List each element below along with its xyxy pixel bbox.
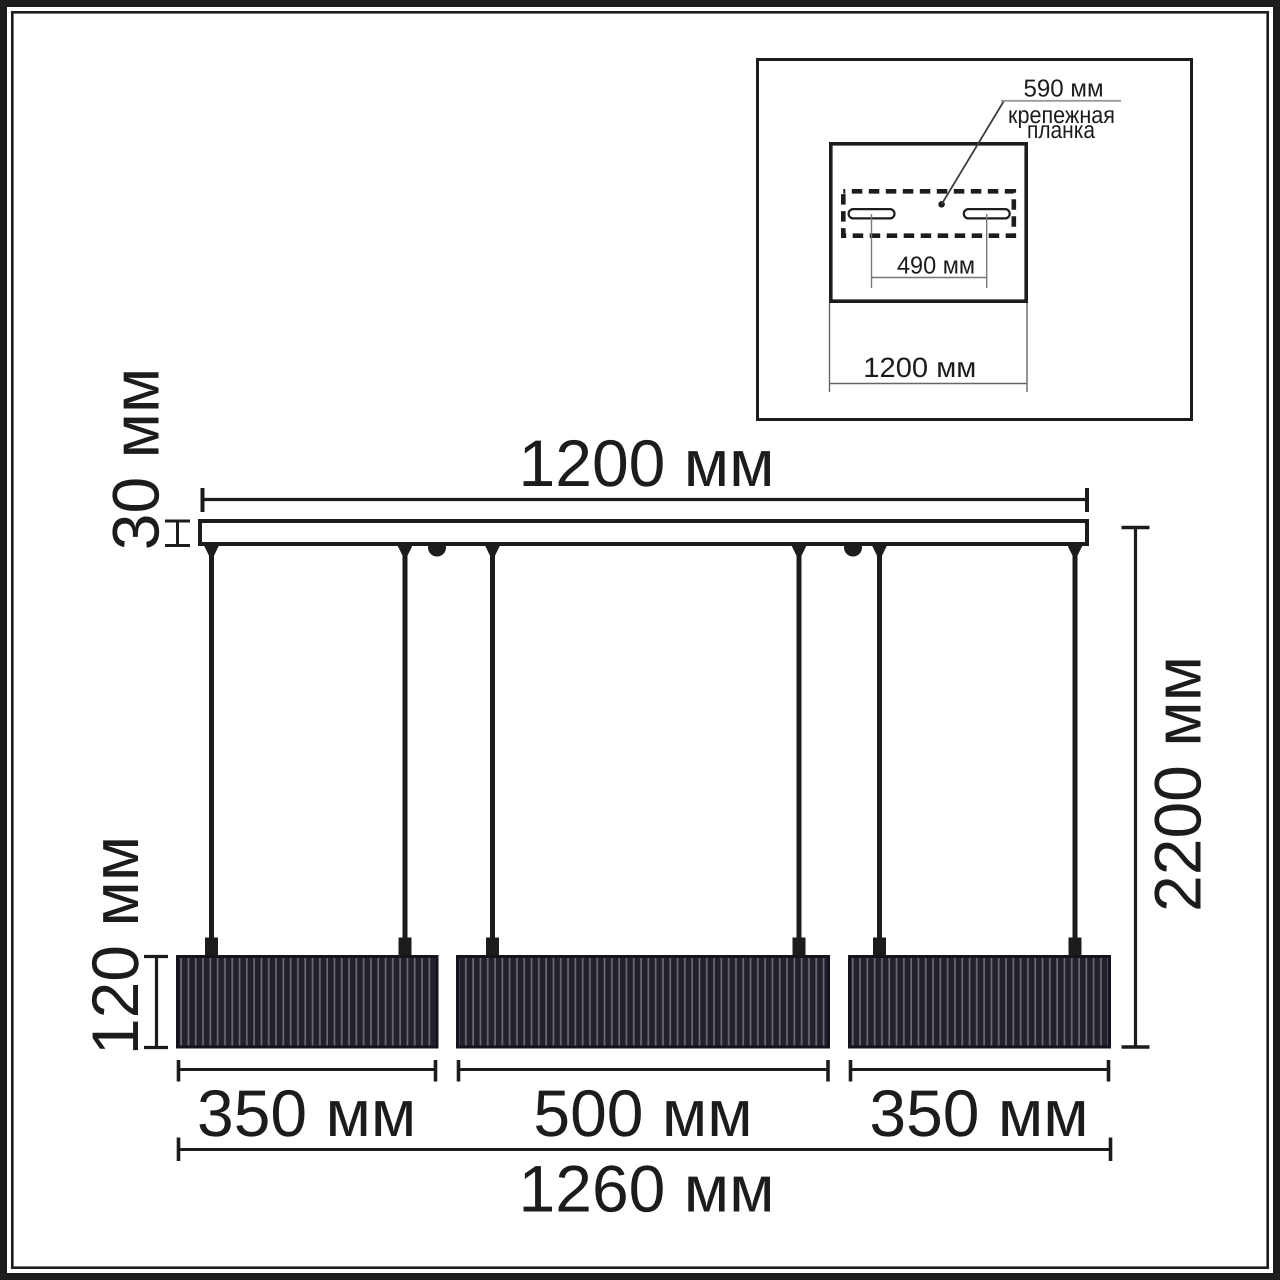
svg-text:500 мм: 500 мм <box>533 1076 752 1150</box>
svg-text:120 мм: 120 мм <box>78 836 152 1055</box>
svg-text:590 мм: 590 мм <box>1024 76 1104 103</box>
svg-text:350 мм: 350 мм <box>197 1076 416 1150</box>
svg-text:планка: планка <box>1027 117 1096 144</box>
svg-text:1200 мм: 1200 мм <box>519 426 775 500</box>
svg-text:2200 мм: 2200 мм <box>1141 656 1215 912</box>
svg-text:350 мм: 350 мм <box>869 1076 1088 1150</box>
svg-text:490 мм: 490 мм <box>897 253 975 280</box>
svg-text:1260 мм: 1260 мм <box>519 1152 775 1226</box>
svg-text:30 мм: 30 мм <box>99 368 173 551</box>
svg-text:1200 мм: 1200 мм <box>863 352 976 383</box>
